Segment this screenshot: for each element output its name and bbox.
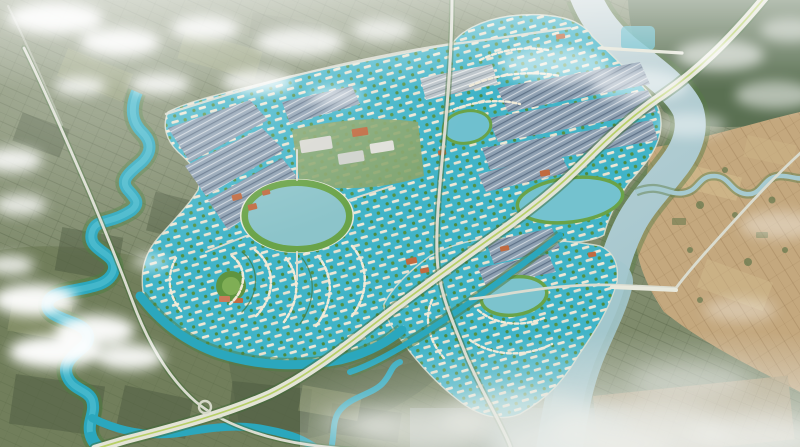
cloud-puff: [9, 336, 101, 368]
cloud-haze: [676, 40, 764, 70]
cloud-puff: [256, 28, 344, 56]
masterplan-scene: [0, 0, 800, 447]
cloud-puff: [307, 86, 363, 104]
clubhouse: [219, 296, 230, 302]
cloud-puff: [352, 19, 412, 41]
cloud-puff: [54, 77, 106, 95]
cloud-haze: [654, 113, 726, 137]
cloud-puff: [130, 74, 190, 94]
cloud-haze: [592, 69, 688, 101]
aerial-render: [0, 0, 800, 447]
cloud-puff: [132, 254, 168, 270]
cloud-puff: [80, 28, 160, 56]
cloud-puff: [171, 16, 239, 40]
fog-patch: [630, 362, 750, 398]
fog-patch: [320, 408, 400, 436]
cloud-haze: [704, 298, 776, 322]
park-circle-inner: [222, 277, 240, 295]
cloud-puff: [222, 70, 294, 94]
cloud-haze: [500, 47, 610, 83]
cloud-puff: [96, 344, 164, 370]
cloud-puff: [7, 2, 103, 34]
